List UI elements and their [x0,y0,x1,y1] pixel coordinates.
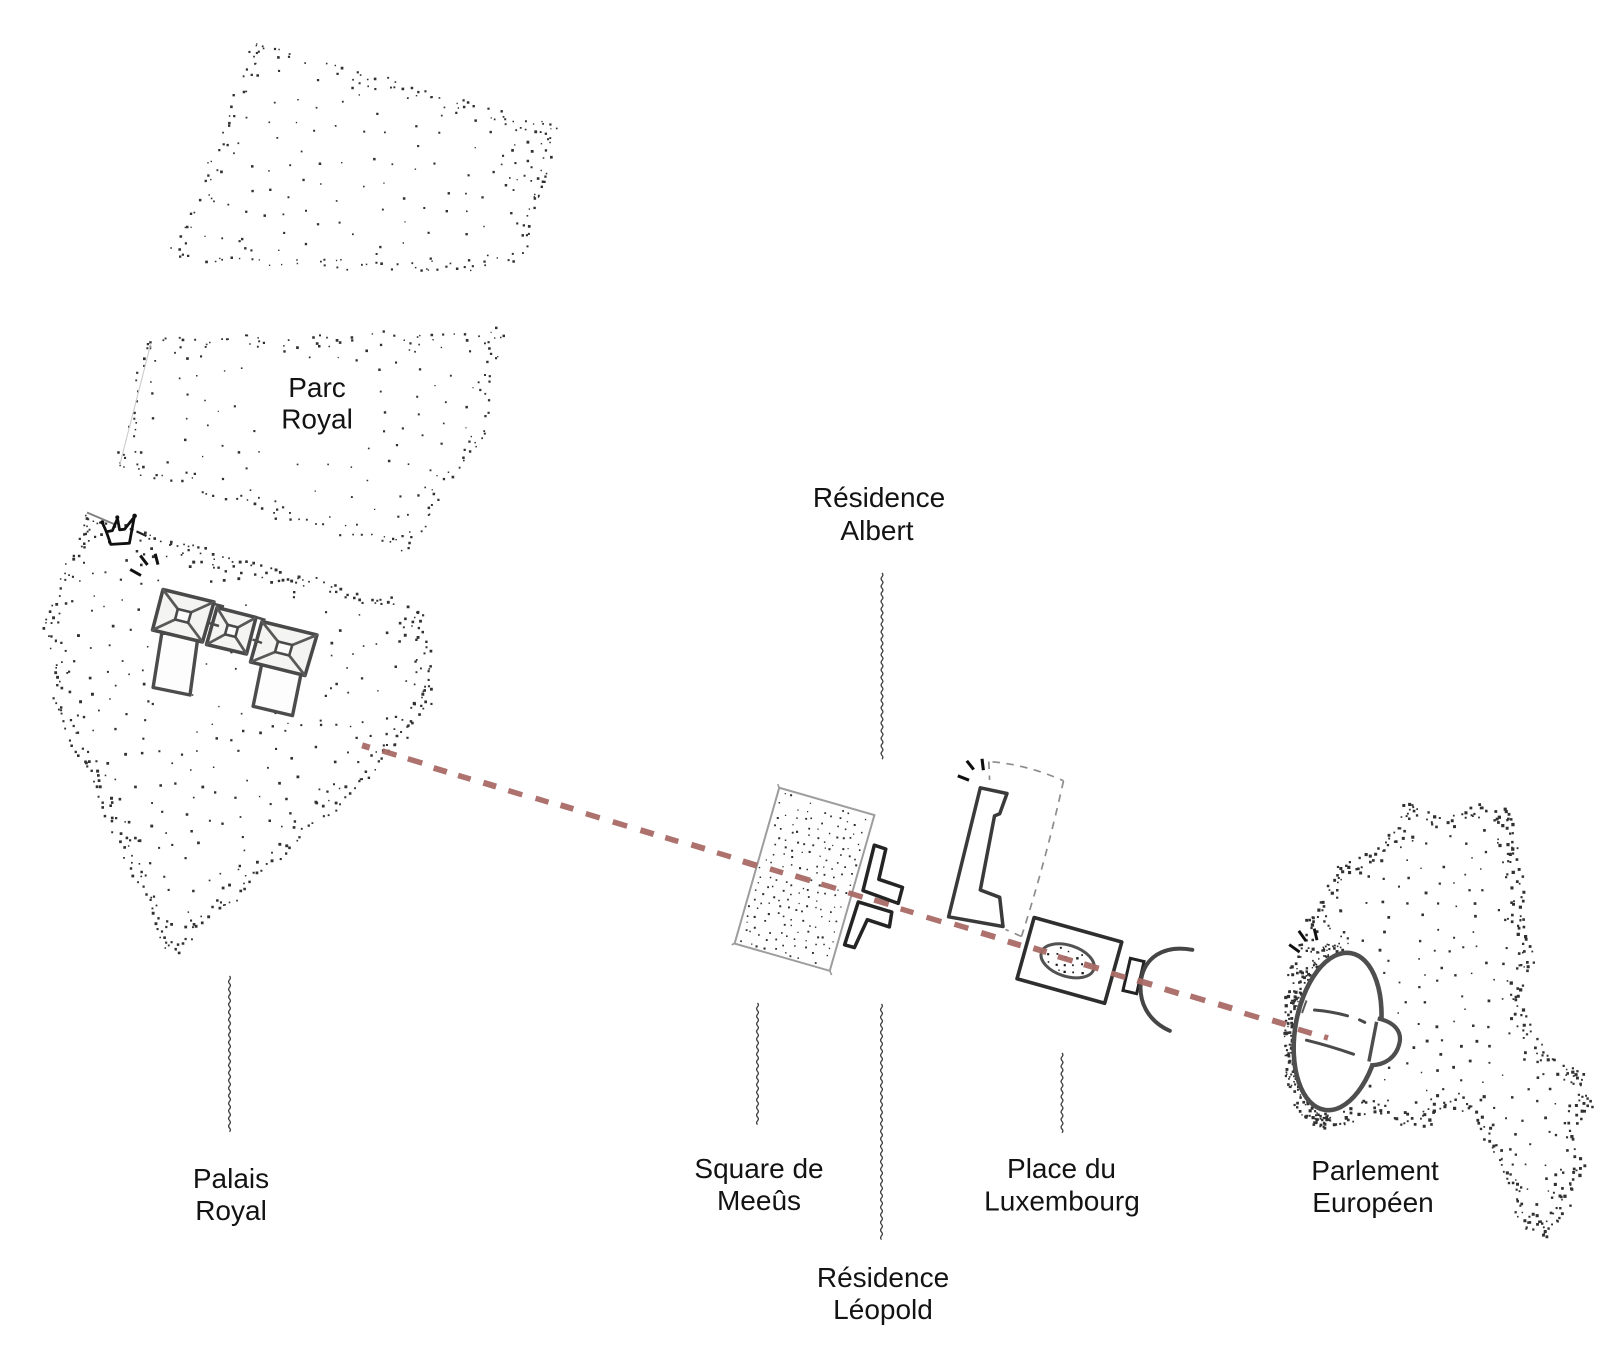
svg-text:Léopold: Léopold [833,1294,933,1325]
svg-text:Royal: Royal [281,404,353,435]
svg-text:Royal: Royal [195,1195,267,1226]
svg-text:Palais: Palais [193,1163,269,1194]
svg-text:Meeûs: Meeûs [717,1185,801,1216]
svg-text:Parlement: Parlement [1311,1155,1439,1186]
svg-text:Résidence: Résidence [813,482,945,513]
svg-text:Parc: Parc [288,372,346,403]
svg-text:Luxembourg: Luxembourg [984,1186,1140,1217]
svg-text:Européen: Européen [1312,1187,1433,1218]
svg-text:Résidence: Résidence [817,1262,949,1293]
svg-text:Albert: Albert [840,515,913,546]
svg-text:Square de: Square de [694,1153,823,1184]
svg-text:Place du: Place du [1007,1153,1116,1184]
